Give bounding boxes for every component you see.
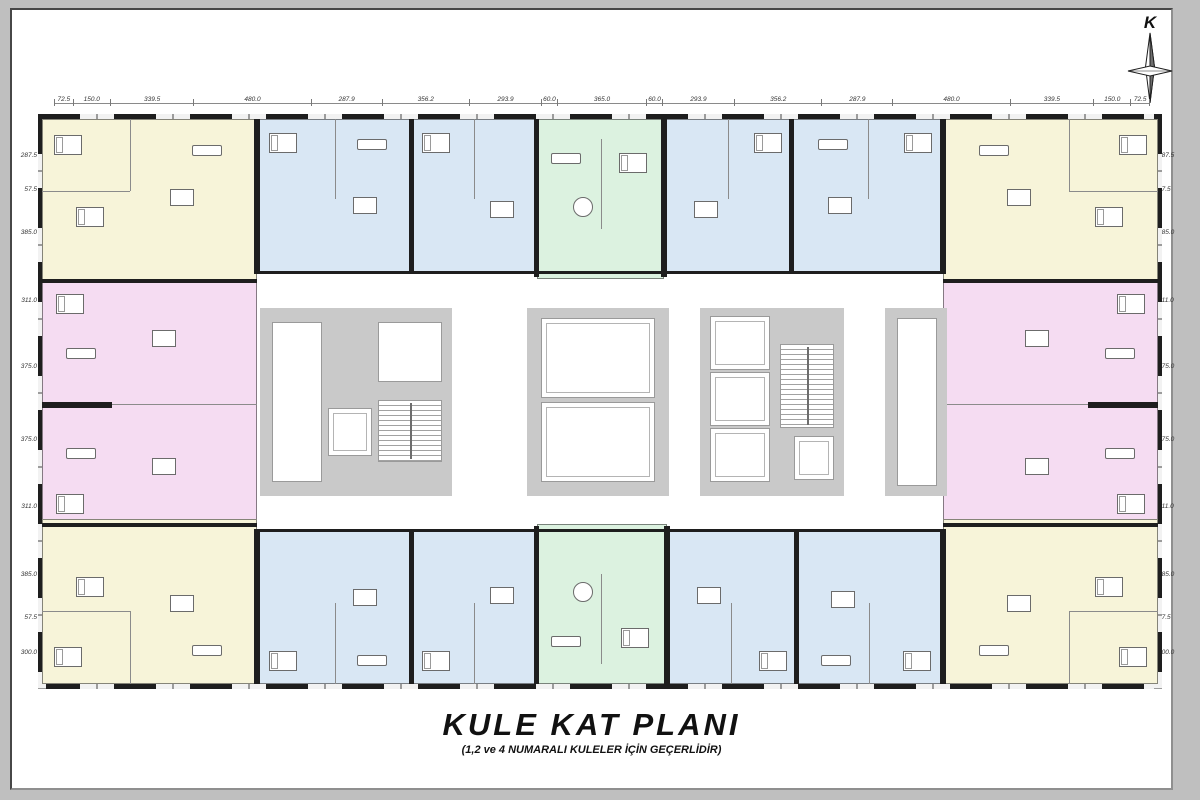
dimension-label: 375.0 xyxy=(21,437,37,444)
unit-yellow-bottom-left xyxy=(42,519,257,684)
core-block-right xyxy=(885,308,947,496)
unit-blue-bottom-1 xyxy=(257,529,412,684)
dimension-label: 293.9 xyxy=(690,97,706,104)
dimension-label: 311.0 xyxy=(21,504,37,511)
shaft-room xyxy=(272,322,322,482)
dimension-label: 72.5 xyxy=(57,97,70,104)
dimension-label: 150.0 xyxy=(1104,97,1120,104)
core-block-left xyxy=(260,308,452,496)
dimension-label: 60.0 xyxy=(543,97,556,104)
unit-blue-top-3 xyxy=(664,119,792,274)
dimension-segment: 356.2 xyxy=(382,99,469,106)
unit-blue-top-4 xyxy=(792,119,947,274)
core-block-elevators-left xyxy=(527,308,669,496)
dimension-segment: 480.0 xyxy=(193,99,310,106)
dimension-label: 293.9 xyxy=(497,97,513,104)
dimension-label: 311.0 xyxy=(21,297,37,304)
dimension-segment: 150.0 xyxy=(73,99,110,106)
dimension-label: 57.5 xyxy=(24,186,37,193)
core-block-elevators-right xyxy=(700,308,844,496)
unit-blue-bottom-2 xyxy=(412,529,537,684)
dimension-label: 480.0 xyxy=(244,97,260,104)
dimension-segment: 150.0 xyxy=(1093,99,1130,106)
unit-green-top-center xyxy=(537,119,664,279)
dimension-label: 60.0 xyxy=(648,97,661,104)
dimension-label: 300.0 xyxy=(21,650,37,657)
unit-blue-bottom-3 xyxy=(667,529,797,684)
dimension-label: 339.5 xyxy=(1044,97,1060,104)
dimension-segment: 72.5 xyxy=(1130,99,1150,106)
dimension-segment: 72.5 xyxy=(54,99,73,106)
elevator-shaft xyxy=(710,316,770,370)
compass: K xyxy=(1124,14,1176,106)
dimension-segment: 287.9 xyxy=(311,99,382,106)
shaft-room xyxy=(897,318,937,486)
dimension-label: 375.0 xyxy=(21,364,37,371)
elevator-shaft xyxy=(541,402,655,482)
dimension-label: 339.5 xyxy=(144,97,160,104)
drawing-sheet: K 72.5150.0339.5480.0287.9356.2293.960.0… xyxy=(10,8,1173,790)
dimension-segment: 356.2 xyxy=(734,99,821,106)
plan-title: KULE KAT PLANI xyxy=(12,708,1171,742)
elevator xyxy=(328,408,372,456)
elevator xyxy=(794,436,834,480)
floor-plan xyxy=(42,119,1158,684)
unit-yellow-top-right xyxy=(943,119,1158,282)
north-label: K xyxy=(1124,14,1176,31)
dimension-segment: 293.9 xyxy=(469,99,541,106)
dimension-label: 150.0 xyxy=(84,97,100,104)
unit-yellow-top-left xyxy=(42,119,257,282)
unit-yellow-bottom-right xyxy=(943,519,1158,684)
elevator-shaft xyxy=(541,318,655,398)
plan-subtitle: (1,2 ve 4 NUMARALI KULELER İÇİN GEÇERLİD… xyxy=(12,744,1171,756)
dimension-label: 356.2 xyxy=(418,97,434,104)
dimension-segment: 60.0 xyxy=(541,99,557,106)
dimension-strip-top: 72.5150.0339.5480.0287.9356.2293.960.036… xyxy=(54,94,1150,106)
dimension-label: 385.0 xyxy=(21,571,37,578)
unit-green-bottom-center xyxy=(537,524,667,684)
stairs xyxy=(780,344,834,428)
elevator-shaft xyxy=(710,372,770,426)
dimension-label: 57.5 xyxy=(24,615,37,622)
dimension-segment: 293.9 xyxy=(662,99,734,106)
core-room xyxy=(378,322,442,382)
dimension-segment: 365.0 xyxy=(557,99,647,106)
title-block: KULE KAT PLANI (1,2 ve 4 NUMARALI KULELE… xyxy=(12,708,1171,756)
dimension-label: 480.0 xyxy=(943,97,959,104)
unit-blue-bottom-4 xyxy=(797,529,943,684)
dimension-label: 356.2 xyxy=(770,97,786,104)
stairs xyxy=(378,400,442,462)
dimension-label: 287.9 xyxy=(849,97,865,104)
dimension-segment: 339.5 xyxy=(1010,99,1093,106)
dimension-label: 365.0 xyxy=(594,97,610,104)
dimension-segment: 60.0 xyxy=(646,99,662,106)
elevator-shaft xyxy=(710,428,770,482)
dimension-label: 287.9 xyxy=(338,97,354,104)
dimension-label: 287.5 xyxy=(21,152,37,159)
unit-blue-top-2 xyxy=(412,119,537,274)
dimension-label: 385.0 xyxy=(21,230,37,237)
dimension-segment: 287.9 xyxy=(821,99,892,106)
dimension-segment: 339.5 xyxy=(110,99,193,106)
dimension-segment: 480.0 xyxy=(892,99,1009,106)
unit-blue-top-1 xyxy=(257,119,412,274)
dimension-label: 72.5 xyxy=(1134,97,1147,104)
